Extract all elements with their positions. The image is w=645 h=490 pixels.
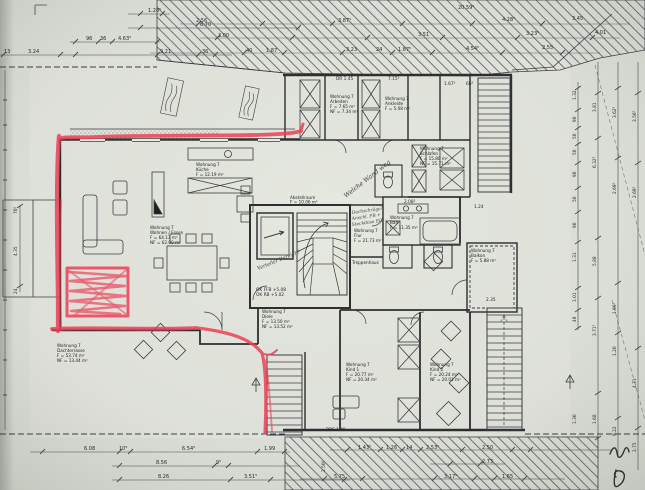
dim: 3.23⁵ [526,31,539,37]
dim: 3.17⁵ [444,474,457,480]
dim: 6.32⁵ [592,156,598,168]
dim: 5.75 [334,474,345,480]
dim: 50 [572,149,578,155]
dim: 3.51 [418,32,429,38]
dim: 9.21 [160,49,171,55]
room-name: Treppenhaus [351,260,379,265]
dim: 90 [572,222,578,228]
floor-plan-canvas: Wohnung 7Wohnen / EssenF = 64.13 m²NF = … [0,0,645,490]
label-treppenhaus: Treppenhaus [351,260,379,265]
dim: 1.26 [386,445,397,451]
dim: 3.24 [28,49,39,55]
label-ok-levels: OK FFB +5.08OK RB +5.02 [256,287,286,298]
dim: 90 [572,116,578,122]
room-nf: NF = 13.44 m² [57,358,88,363]
dim: 9⁵ [216,460,221,466]
dim: 1.28⁵ [148,8,161,14]
dim: 1.43⁵ [358,445,371,451]
dim: 4.35 [13,246,19,256]
dim: 66⁵ [466,81,473,87]
dim: 3.71⁵ [592,324,598,336]
dim: 4.01 [595,30,606,36]
scanned-floor-plan: Wohnung 7Wohnen / EssenF = 64.13 m²NF = … [0,0,645,490]
dim: 1.31 [572,252,578,262]
dim: 3.81 [592,102,598,112]
dim: 8.56 [156,460,167,466]
dim: 2.73 [482,459,493,465]
dim: 2.50⁵ [321,460,327,472]
room-area: F = 10.06 m² [290,200,318,205]
dim: 3.87⁵ [338,18,351,24]
dim: 1.87 [266,48,277,54]
roof-hatch-bottom [285,437,598,490]
dim: 7.15⁵ [388,76,400,82]
dim: 2.69⁵ [612,182,618,194]
room-area: F = 12.19 m² [196,172,224,177]
room-area: F = 5.08 m² [385,106,410,111]
room-area: F = 21.73 m² [354,238,382,243]
dim: 40 [246,48,252,54]
dim: 2.08⁵ [404,199,416,205]
red-hook [301,124,303,131]
dim: 3.62⁵ [612,106,618,118]
dim: 50 [572,133,578,139]
dim: 1.01 [572,292,578,302]
dim: 24 [13,288,19,294]
dim: 3.00 [218,33,229,39]
dim: 2.75 [632,442,638,452]
dim: 1.67⁵ [444,81,456,87]
red-line-left [57,136,59,331]
room-nf: NF = 62.00 m² [150,240,181,245]
dim: 6.54⁵ [182,446,195,452]
dim: 24 [376,47,382,53]
room-area: F = 11.35 m² [390,225,418,230]
dim: 2.56 [196,18,207,24]
dim: 1.32 [572,90,578,100]
label-abstellraum: AbstellraumF = 10.06 m² [290,195,318,205]
dim: 4.63⁵ [118,36,131,42]
dim: 1.87⁵ [398,47,411,53]
room-nf: NF = 15.71 m² [420,161,451,166]
dim: 1.68 [592,414,598,424]
dim: 6.08 [84,446,95,452]
dim: 49 [572,316,578,322]
dim: 3.23 [346,47,357,53]
dim: 2.50 [482,445,493,451]
dim: 1.20 [612,346,618,356]
dim: 90 [572,171,578,177]
dim: 20.59⁵ [458,5,474,11]
room-nf: NF = 7.34 m² [330,109,358,114]
dim: 10⁵ [119,446,127,452]
dim: 3.56⁵ [632,110,638,122]
dim: 1.24 [474,204,484,210]
room-nf: NF = 13.52 m² [262,324,293,329]
dim: 50 [572,196,578,202]
dim: 5.88 [592,256,598,266]
dim: 3.51⁵ [244,474,257,480]
dim: 2.35 [486,297,496,303]
dim: 14 [406,445,412,451]
dim: 3.45 [572,16,583,22]
dim: 36 [100,36,106,42]
dim: 4.54⁵ [466,46,479,52]
dim: 2.69⁵ [632,186,638,198]
dim: 2.53¹ [426,445,439,451]
dim: 1.99 [264,446,275,452]
dim: 9.22 [612,426,618,436]
room-area: F = 5.88 m² [471,258,496,263]
dim: 36 [202,49,208,55]
room-nf: NF = 20.01 m² [430,377,461,382]
dim: 1.69⁵ [612,302,618,314]
dim: 8.26 [158,474,169,480]
dim: 1.30 [572,414,578,424]
red-line-bottom [52,328,197,329]
red-line-left-double [60,200,61,330]
dim: DBF 1.40 [326,427,346,433]
dim: 96 [86,36,92,42]
dim: DR 1.45 [336,76,353,82]
level-note: OK RB +5.02 [256,292,284,298]
dim: 1.65 [502,474,513,480]
room-nf: NF = 20.34 m² [346,377,377,382]
dim: 4.71 [632,378,638,388]
dim: 13 [4,49,10,55]
dim: 4.28⁵ [502,17,515,23]
dim: 2.55 [542,45,553,51]
dim: 70⁵ [13,207,19,214]
